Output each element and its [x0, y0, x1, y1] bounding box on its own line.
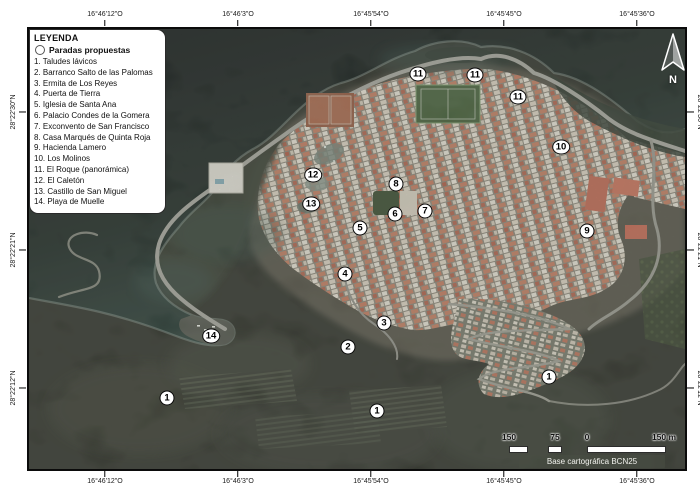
lat-tick: 28°22'12"N [10, 370, 26, 405]
tick-mark [19, 249, 26, 250]
legend-item: 4. Puerta de Tierra [34, 89, 161, 100]
lat-tick: 28°22'12"N [687, 370, 700, 405]
tick-mark [637, 471, 638, 477]
tick-mark [105, 471, 106, 477]
legend-item: 1. Taludes lávicos [34, 57, 161, 68]
stop-marker: 1 [542, 370, 557, 385]
scale-label: 75 [550, 432, 559, 442]
scale-label: 150 m [652, 432, 676, 442]
stop-marker: 5 [353, 221, 368, 236]
legend-item: 6. Palacio Condes de la Gomera [34, 111, 161, 122]
tick-mark [637, 20, 638, 26]
tick-mark [105, 20, 106, 26]
stop-marker: 1 [370, 404, 385, 419]
lat-tick: 28°22'30"N [687, 94, 700, 129]
lon-tick: 16°46'12"O [87, 11, 122, 26]
scale-segment [587, 446, 666, 453]
scale-label: 150 [502, 432, 516, 442]
stop-marker: 10 [552, 140, 570, 155]
tick-mark [687, 249, 694, 250]
scale-segment [509, 446, 528, 453]
lon-tick: 16°45'36"O [619, 11, 654, 26]
lat-tick: 28°22'21"N [10, 232, 26, 267]
map-viewport: 1 1 1 2 3 4 5 6 7 8 9 10 [27, 27, 687, 471]
legend-item: 2. Barranco Salto de las Palomas [34, 68, 161, 79]
stop-marker: 7 [418, 204, 433, 219]
legend-item: 13. Castillo de San Miguel [34, 187, 161, 198]
stop-marker: 12 [304, 168, 322, 183]
north-arrow: N [657, 31, 687, 85]
tick-mark [371, 471, 372, 477]
stop-marker: 11 [509, 90, 526, 105]
legend: LEYENDA Paradas propuestas 1. Taludes lá… [29, 29, 166, 214]
stop-marker: 11 [466, 68, 483, 83]
legend-item: 5. Iglesia de Santa Ana [34, 100, 161, 111]
legend-items: 1. Taludes lávicos 2. Barranco Salto de … [34, 57, 161, 208]
stop-marker: 2 [341, 340, 356, 355]
north-label: N [657, 75, 687, 85]
tick-mark [19, 111, 26, 112]
stop-marker: 11 [409, 67, 426, 82]
lon-tick: 16°45'54"O [353, 471, 388, 486]
lon-tick: 16°46'12"O [87, 471, 122, 486]
scale-label: 0 [585, 432, 590, 442]
stop-circle-icon [35, 45, 45, 55]
stop-marker: 9 [580, 224, 595, 239]
legend-item: 3. Ermita de Los Reyes [34, 79, 161, 90]
lon-tick: 16°45'45"O [486, 11, 521, 26]
legend-item: 7. Exconvento de San Francisco [34, 122, 161, 133]
tick-mark [19, 387, 26, 388]
stop-marker: 1 [160, 391, 175, 406]
map-figure: 1 1 1 2 3 4 5 6 7 8 9 10 [0, 0, 700, 495]
legend-item: 10. Los Molinos [34, 154, 161, 165]
stop-marker: 14 [202, 329, 220, 344]
stop-marker: 13 [302, 197, 320, 212]
legend-title: LEYENDA [34, 33, 161, 43]
lat-tick: 28°22'21"N [687, 232, 700, 267]
stop-marker: 4 [338, 267, 353, 282]
legend-symbol-row: Paradas propuestas [34, 45, 161, 55]
base-map-credit: Base cartográfica BCN25 [519, 455, 665, 468]
tick-mark [371, 20, 372, 26]
stop-marker: 8 [389, 177, 404, 192]
tick-mark [504, 471, 505, 477]
stop-marker: 3 [377, 316, 392, 331]
north-arrow-icon [658, 31, 687, 75]
legend-item: 11. El Roque (panorámica) [34, 165, 161, 176]
tick-mark [687, 387, 694, 388]
legend-item: 9. Hacienda Lamero [34, 143, 161, 154]
lon-tick: 16°46'3"O [222, 471, 254, 486]
tick-mark [687, 111, 694, 112]
lon-tick: 16°45'45"O [486, 471, 521, 486]
legend-item: 8. Casa Marqués de Quinta Roja [34, 133, 161, 144]
tick-mark [238, 471, 239, 477]
legend-item: 14. Playa de Muelle [34, 197, 161, 208]
legend-item: 12. El Caletón [34, 176, 161, 187]
tick-mark [504, 20, 505, 26]
tick-mark [238, 20, 239, 26]
lat-tick: 28°22'30"N [10, 94, 26, 129]
scale-segment [548, 446, 562, 453]
lon-tick: 16°45'36"O [619, 471, 654, 486]
lon-tick: 16°45'54"O [353, 11, 388, 26]
legend-subtitle: Paradas propuestas [49, 45, 130, 55]
stop-marker: 6 [388, 207, 403, 222]
scale-bar: 150750150 m [507, 432, 673, 456]
lon-tick: 16°46'3"O [222, 11, 254, 26]
